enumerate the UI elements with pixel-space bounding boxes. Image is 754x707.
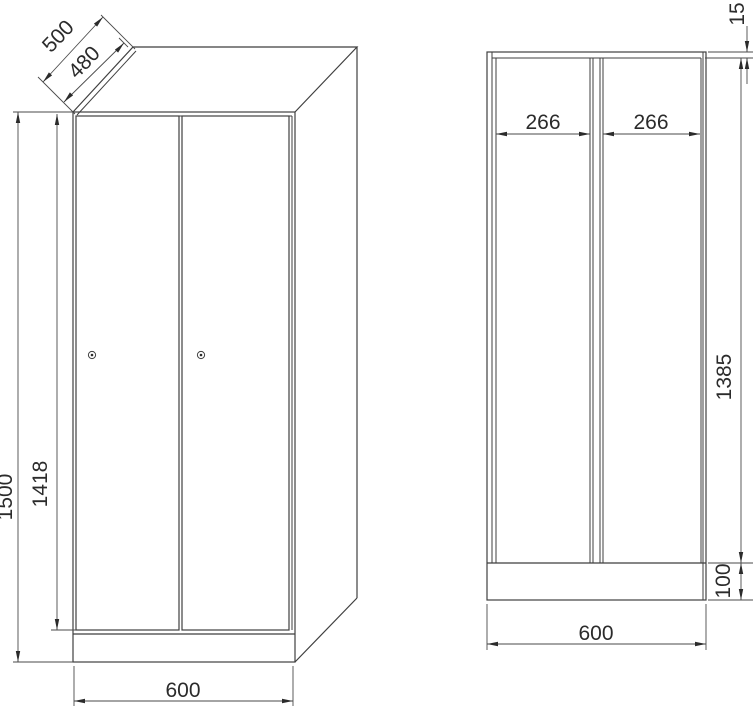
right-door xyxy=(182,116,289,630)
arrowhead xyxy=(739,552,743,563)
dim-label-top-panel: 15 xyxy=(726,2,749,25)
arrowhead xyxy=(739,589,743,600)
front-view: 500 480 1500 1418 xyxy=(0,15,357,706)
dim-label-right-compartment: 266 xyxy=(633,111,668,134)
arrowhead xyxy=(487,642,498,646)
dim-total-height-1500: 1500 xyxy=(0,112,73,662)
arrowhead xyxy=(55,619,59,630)
dim-label-front-width: 600 xyxy=(165,679,200,702)
dim-top-panel-15: 15 xyxy=(705,2,753,84)
dim-label-inner-height: 1385 xyxy=(713,354,736,401)
dim-right-compartment-266: 266 xyxy=(603,111,700,136)
arrowhead xyxy=(695,642,706,646)
dim-label-section-width: 600 xyxy=(578,622,613,645)
arrowhead xyxy=(16,112,20,123)
side-bottom-edge xyxy=(295,598,357,662)
dim-section-width-600: 600 xyxy=(487,604,706,650)
dim-label-total-height: 1500 xyxy=(0,474,17,521)
arrowhead xyxy=(603,132,614,136)
left-door xyxy=(76,116,179,630)
arrowhead xyxy=(55,114,59,125)
top-face-outline xyxy=(73,47,357,112)
lock-dot xyxy=(91,354,94,357)
extension-line xyxy=(101,15,135,49)
lock-cylinder-left-icon xyxy=(88,351,95,358)
dim-label-left-compartment: 266 xyxy=(525,111,560,134)
dim-label-plinth: 100 xyxy=(712,563,735,598)
arrowhead xyxy=(282,699,293,703)
dim-label-depth: 500 xyxy=(38,16,79,57)
arrowhead xyxy=(74,699,85,703)
lock-dot xyxy=(200,354,203,357)
dim-plinth-100: 100 xyxy=(708,563,753,600)
arrowhead xyxy=(745,58,749,69)
dim-label-depth-inner: 480 xyxy=(64,42,105,83)
arrowhead xyxy=(579,132,590,136)
dim-left-compartment-266: 266 xyxy=(496,111,590,136)
cabinet-front-face xyxy=(73,112,295,662)
arrowhead xyxy=(739,58,743,69)
arrowhead xyxy=(16,651,20,662)
arrowhead xyxy=(745,41,749,52)
section-view: 266 266 15 1385 xyxy=(487,2,753,650)
dim-door-height-1418: 1418 xyxy=(29,114,76,630)
arrowhead xyxy=(496,132,507,136)
dim-front-width-600: 600 xyxy=(74,666,293,706)
lock-cylinder-right-icon xyxy=(197,351,204,358)
dim-inner-height-1385: 1385 xyxy=(713,58,743,563)
arrowhead xyxy=(739,563,743,574)
technical-drawing-canvas: 500 480 1500 1418 xyxy=(0,0,754,707)
locker-dimension-drawing: 500 480 1500 1418 xyxy=(0,0,754,707)
arrowhead xyxy=(689,132,700,136)
dim-label-door-height: 1418 xyxy=(29,461,52,508)
